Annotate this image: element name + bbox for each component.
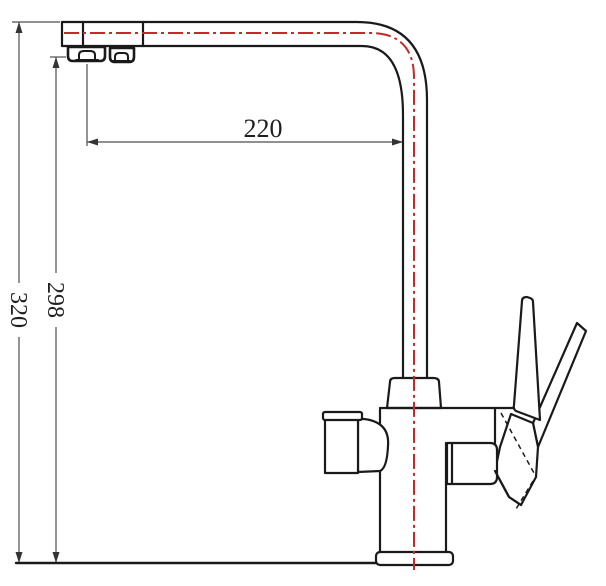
dimension-label-spout-reach: 220: [244, 114, 283, 143]
dimension-label-spout-height: 298: [42, 282, 68, 318]
faucet-outline: [16, 22, 586, 565]
arrow-320-top: [16, 22, 23, 33]
left-outlet-cap: [323, 412, 362, 420]
faucet-dimension-drawing: 220 320 298: [0, 0, 606, 586]
technical-drawing-canvas: 220 320 298: [0, 0, 606, 586]
spout-centerline: [64, 33, 414, 570]
arrow-220-left: [87, 139, 98, 146]
aerator-dome-filter: [113, 53, 130, 61]
right-outlet-body: [447, 443, 497, 484]
arrow-220-right: [392, 139, 403, 146]
dimension-arrows: [16, 22, 404, 563]
left-outlet-body: [325, 419, 358, 473]
handle-blade: [514, 297, 540, 420]
handle-lever: [533, 323, 586, 447]
arrow-298-bottom: [53, 552, 60, 563]
aerator-housings: [68, 47, 134, 62]
dimension-label-total-height: 320: [5, 292, 31, 328]
spout-inner-edge: [62, 46, 403, 378]
aerator-dome-main: [76, 51, 98, 60]
arrow-298-top: [53, 57, 60, 68]
left-outlet-barrel: [358, 419, 388, 472]
dimension-lines: [12, 22, 403, 563]
arrow-320-bottom: [16, 552, 23, 563]
dimension-labels: 220 320 298: [5, 114, 283, 337]
spout-outer-edge: [62, 22, 427, 378]
handle-knuckle: [495, 414, 538, 505]
